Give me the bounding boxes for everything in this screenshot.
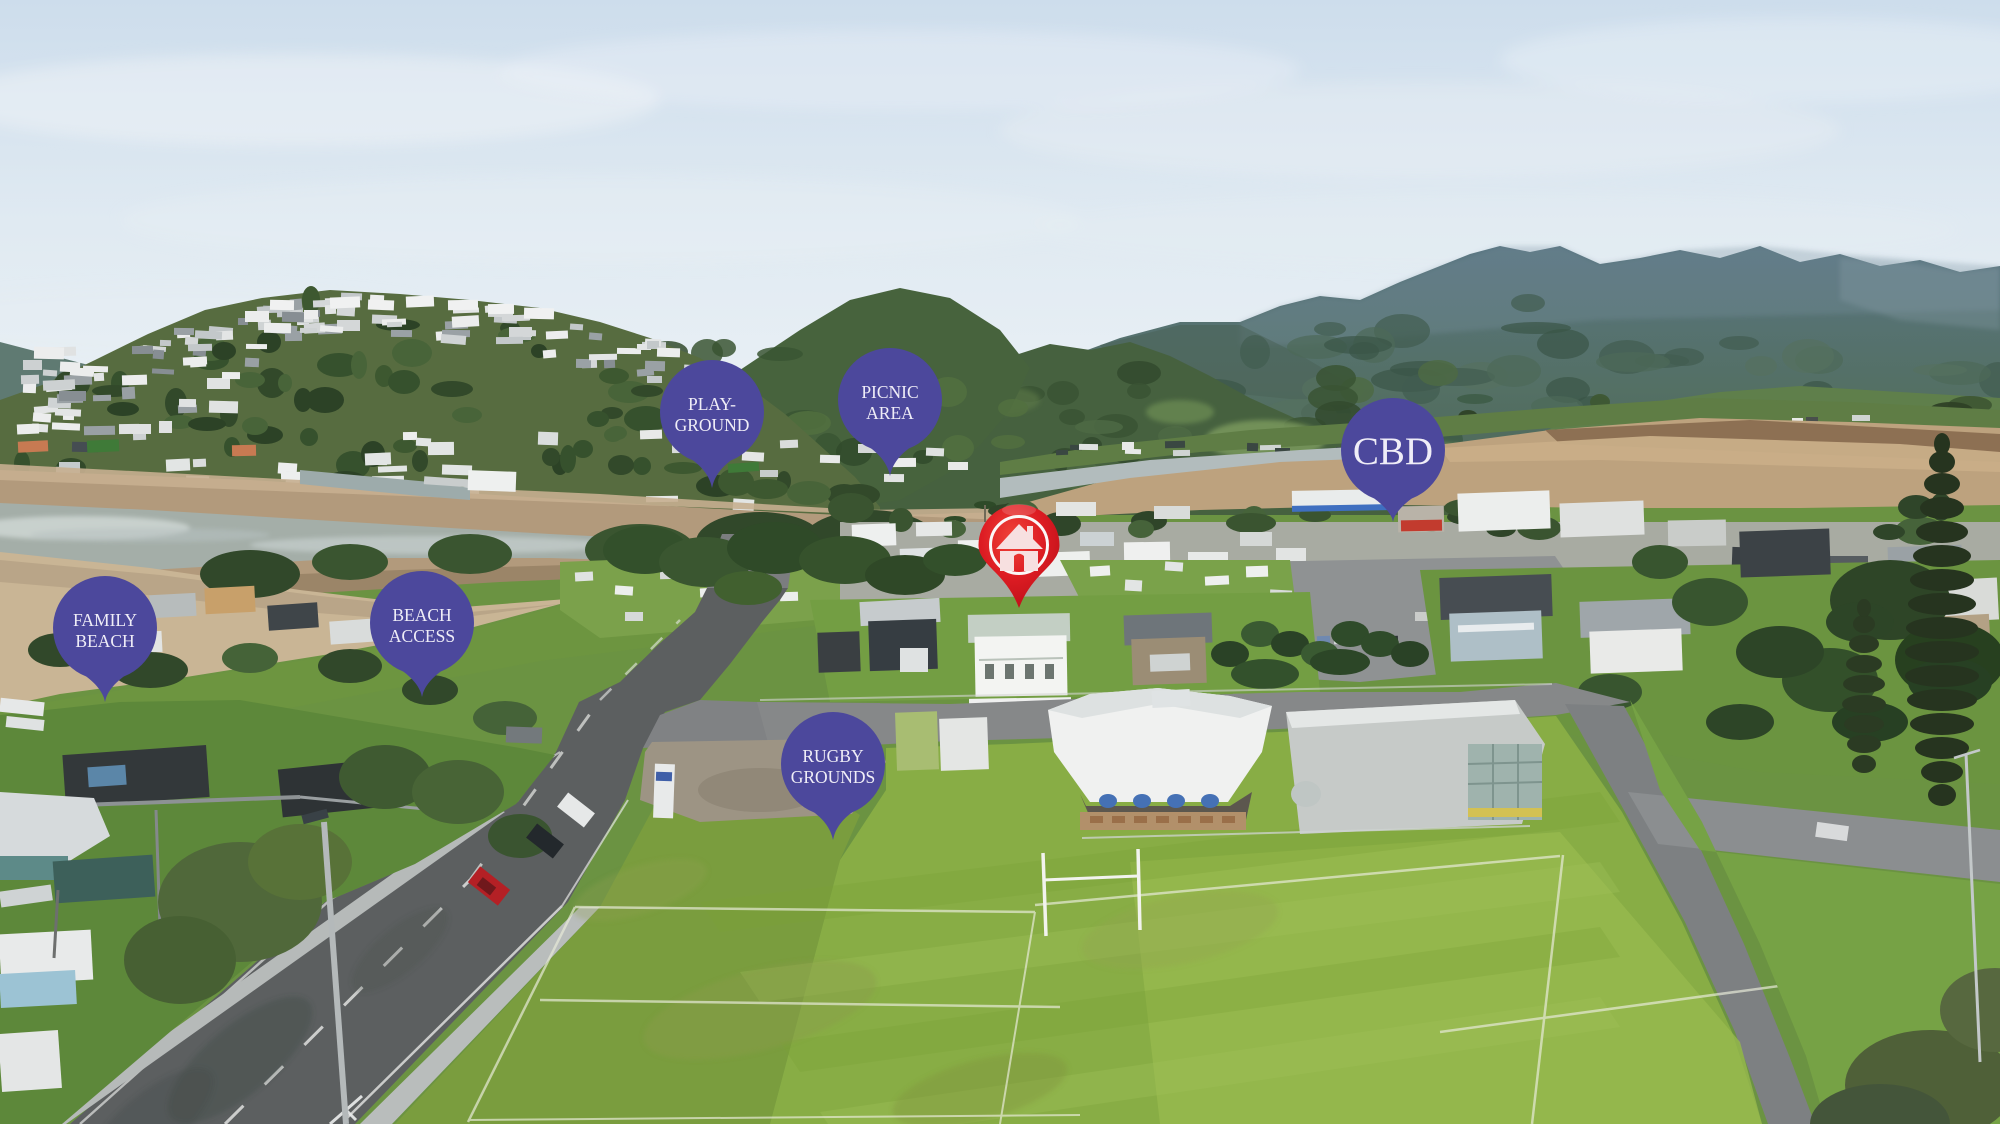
svg-text:RUGBY: RUGBY (802, 746, 864, 766)
svg-text:BEACH: BEACH (75, 631, 135, 651)
svg-text:PICNIC: PICNIC (861, 382, 918, 402)
svg-text:CBD: CBD (1353, 430, 1433, 473)
svg-text:ACCESS: ACCESS (389, 626, 455, 646)
svg-text:BEACH: BEACH (392, 605, 452, 625)
svg-text:FAMILY: FAMILY (73, 610, 137, 630)
svg-text:GROUND: GROUND (675, 415, 750, 435)
svg-text:GROUNDS: GROUNDS (791, 767, 876, 787)
svg-text:PLAY-: PLAY- (688, 394, 736, 414)
svg-text:AREA: AREA (866, 403, 914, 423)
